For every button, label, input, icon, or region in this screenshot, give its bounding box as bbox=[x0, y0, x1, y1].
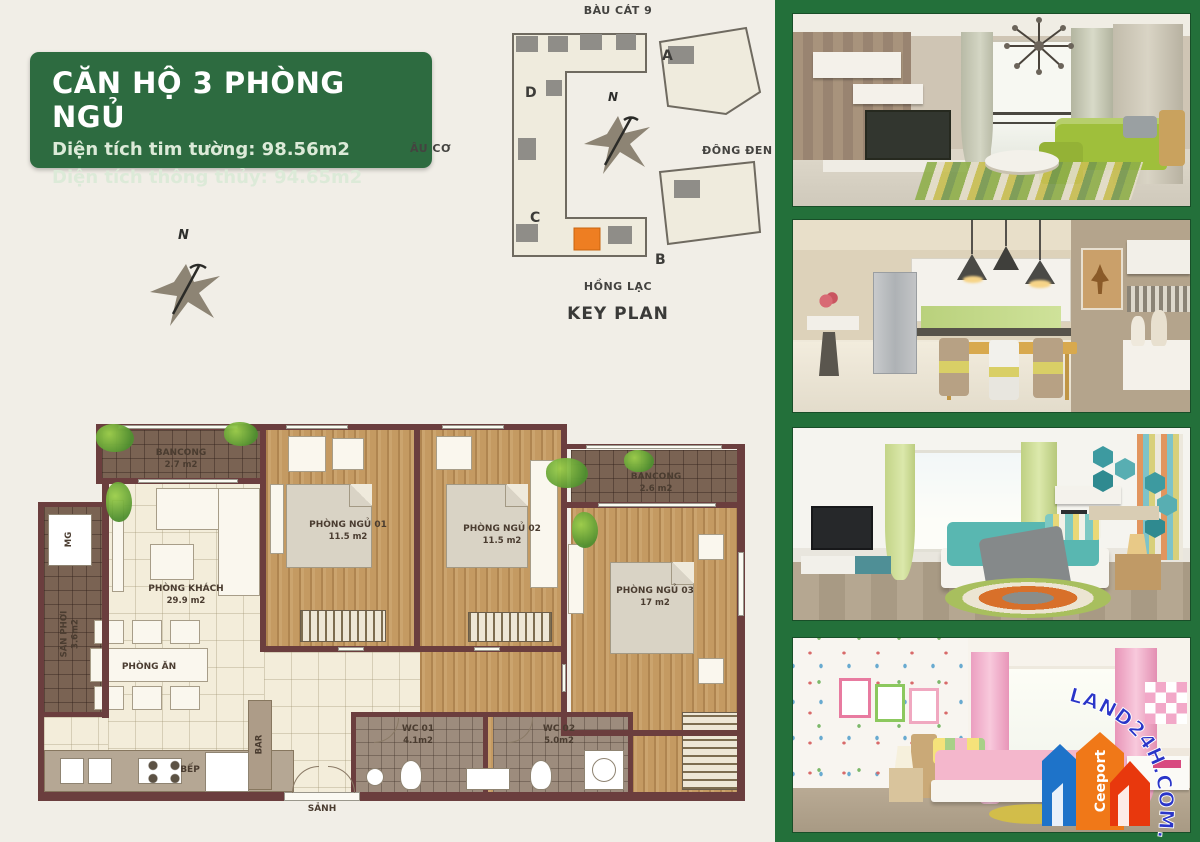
washer-label: MG bbox=[48, 514, 92, 566]
photo-bedroom bbox=[793, 428, 1190, 620]
room-label-balcony1: BANCONG 2.7 m2 bbox=[126, 448, 236, 471]
sideboard bbox=[1123, 340, 1190, 390]
sink-symbol bbox=[60, 758, 84, 784]
window bbox=[586, 445, 722, 449]
compass-north-label: N bbox=[178, 228, 189, 243]
flower-vase bbox=[811, 286, 841, 316]
wall bbox=[38, 502, 108, 507]
room-name: PHÒNG NGỦ 01 bbox=[292, 520, 404, 532]
entry-opening bbox=[284, 792, 360, 801]
window bbox=[738, 552, 744, 616]
wardrobe-symbol bbox=[468, 612, 552, 642]
pendant-lamp bbox=[993, 246, 1019, 270]
street-label-top: BÀU CÁT 9 bbox=[468, 4, 768, 17]
lamp-glow bbox=[1029, 280, 1051, 288]
countertop bbox=[911, 328, 1071, 336]
table-leg bbox=[1065, 354, 1069, 400]
hall-label: SẢNH bbox=[272, 804, 372, 816]
page: CĂN HỘ 3 PHÒNG NGỦ Diện tích tim tường: … bbox=[0, 0, 1200, 842]
coffee-table-symbol bbox=[150, 544, 194, 580]
green-backsplash bbox=[921, 306, 1061, 328]
room-name: BANCONG bbox=[126, 448, 236, 460]
dining-chair bbox=[939, 338, 969, 396]
bedside-lamp bbox=[895, 746, 913, 768]
wall-frame bbox=[909, 688, 939, 724]
pendant-stem bbox=[1005, 220, 1007, 246]
wc-sink-symbol bbox=[366, 768, 384, 786]
room-label-wc2: WC 02 5.0m2 bbox=[498, 724, 620, 747]
room-area: 2.7 m2 bbox=[126, 460, 236, 471]
room-area: 2.6 m2 bbox=[600, 484, 712, 495]
balcony-railing bbox=[993, 112, 1071, 115]
wall-frame bbox=[839, 678, 871, 718]
room-label-bedroom3: PHÒNG NGỦ 03 17 m2 bbox=[596, 586, 714, 609]
compass: N bbox=[138, 230, 234, 334]
page-title: CĂN HỘ 3 PHÒNG NGỦ bbox=[52, 66, 410, 134]
room-name: WC 01 bbox=[360, 724, 476, 736]
toilet-symbol bbox=[400, 760, 422, 790]
chair-symbol bbox=[132, 620, 162, 644]
headboard-shelf bbox=[1089, 506, 1159, 520]
block-label-a: A bbox=[662, 48, 673, 64]
photo-kitchen-dining bbox=[793, 220, 1190, 412]
shelf-symbol bbox=[270, 484, 284, 554]
nightstand bbox=[1115, 554, 1161, 590]
fridge bbox=[873, 272, 917, 374]
watermark-logo-text: Ceeport bbox=[1093, 749, 1109, 812]
wall-frame bbox=[875, 684, 905, 722]
window bbox=[118, 425, 238, 429]
sliding-door bbox=[598, 503, 716, 507]
room-label-wc1: WC 01 4.1m2 bbox=[360, 724, 476, 747]
street-label-bottom: HỒNG LẠC bbox=[468, 280, 768, 293]
wall bbox=[488, 712, 633, 717]
room-area: 11.5 m2 bbox=[446, 536, 558, 547]
highlighted-unit bbox=[574, 228, 600, 250]
wall-shelf bbox=[813, 52, 901, 78]
title-box: CĂN HỘ 3 PHÒNG NGỦ Diện tích tim tường: … bbox=[30, 52, 432, 168]
tv-screen bbox=[811, 506, 873, 550]
room-label-living: PHÒNG KHÁCH 29.9 m2 bbox=[120, 584, 252, 607]
room-name: SÂN PHƠI bbox=[59, 611, 69, 658]
room-name: BAR bbox=[254, 735, 265, 755]
wardrobe-symbol bbox=[682, 712, 738, 790]
tv-screen bbox=[865, 110, 951, 160]
room-name: PHÒNG NGỦ 02 bbox=[446, 524, 558, 536]
bath-basin-symbol bbox=[592, 758, 616, 782]
chair-symbol bbox=[94, 686, 124, 710]
plant-icon bbox=[106, 482, 132, 522]
block-label-c: C bbox=[530, 210, 540, 226]
curtain bbox=[961, 32, 993, 176]
dining-chair bbox=[1033, 338, 1063, 398]
street-label-left: ÂU CƠ bbox=[410, 142, 451, 155]
sink-symbol bbox=[88, 758, 112, 784]
room-name: BẾP bbox=[150, 765, 230, 777]
wall-shelf bbox=[853, 84, 923, 104]
room-area: 5.0m2 bbox=[498, 736, 620, 747]
key-plan-caption: KEY PLAN bbox=[468, 304, 768, 324]
wall-shelf bbox=[1055, 486, 1121, 504]
room-area: 29.9 m2 bbox=[120, 596, 252, 607]
media-unit bbox=[801, 556, 891, 574]
lamp-glow bbox=[963, 276, 983, 283]
dining-chair bbox=[989, 340, 1019, 400]
room-area: 17 m2 bbox=[596, 598, 714, 609]
wall-cabinet bbox=[1127, 240, 1190, 274]
door-opening bbox=[338, 647, 364, 651]
vase bbox=[1151, 310, 1167, 346]
cabinet-symbol bbox=[288, 436, 326, 472]
wall bbox=[260, 646, 567, 652]
vase bbox=[1131, 316, 1145, 346]
bar-label: BAR bbox=[248, 700, 272, 790]
cabinet-symbol bbox=[332, 438, 364, 470]
area-line-1: Diện tích tim tường: 98.56m2 bbox=[52, 138, 410, 162]
room-label-laundry: SÂN PHƠI 3.6m2 bbox=[42, 584, 98, 684]
chair-symbol bbox=[170, 686, 200, 710]
room-area: 11.5 m2 bbox=[292, 532, 404, 543]
door-opening bbox=[562, 664, 566, 692]
side-cabinet bbox=[1159, 110, 1185, 166]
area-line-2: Diện tích thông thủy: 94.65m2 bbox=[52, 166, 410, 190]
sputnik-chandelier bbox=[1001, 16, 1077, 78]
compass-star bbox=[138, 230, 234, 334]
block-label-d: D bbox=[525, 85, 537, 101]
sofa-symbol bbox=[218, 488, 260, 596]
nightstand-symbol bbox=[698, 658, 724, 684]
room-name: SẢNH bbox=[272, 804, 372, 816]
room-label-dining: PHÒNG ĂN bbox=[86, 662, 212, 674]
door-opening bbox=[474, 647, 500, 651]
room-area: 3.6m2 bbox=[70, 619, 80, 649]
nightstand bbox=[889, 768, 923, 802]
room-name: PHÒNG NGỦ 03 bbox=[596, 586, 714, 598]
room-label-bedroom2: PHÒNG NGỦ 02 11.5 m2 bbox=[446, 524, 558, 547]
wall bbox=[628, 712, 633, 797]
key-plan: BÀU CÁT 9 ÂU CƠ ĐÔNG ĐEN HỒNG LẠC KEY PL… bbox=[468, 4, 768, 334]
room-label-bedroom1: PHÒNG NGỦ 01 11.5 m2 bbox=[292, 520, 404, 543]
key-plan-north-label: N bbox=[608, 90, 618, 104]
room-name: WC 02 bbox=[498, 724, 620, 736]
window bbox=[286, 425, 348, 429]
plant-icon bbox=[572, 512, 598, 548]
key-plan-map bbox=[468, 20, 768, 278]
wall bbox=[414, 424, 420, 652]
wardrobe-symbol bbox=[300, 610, 386, 642]
photo-living-room bbox=[793, 14, 1190, 206]
chair-symbol bbox=[94, 620, 124, 644]
wall bbox=[38, 712, 108, 717]
table-lamp bbox=[1127, 534, 1147, 554]
chair-symbol bbox=[132, 686, 162, 710]
shelf-symbol bbox=[568, 544, 584, 614]
room-name: PHÒNG KHÁCH bbox=[120, 584, 252, 596]
building-wing-a bbox=[660, 28, 760, 114]
cabinet-symbol bbox=[436, 436, 472, 470]
block-label-b: B bbox=[655, 252, 666, 268]
watermark: Ceeport LAND24H.COM.VN bbox=[1030, 633, 1200, 842]
breakfast-bar bbox=[807, 316, 859, 330]
window bbox=[442, 425, 504, 429]
room-label-balcony2: BANCONG 2.6 m2 bbox=[600, 472, 712, 495]
nightstand-symbol bbox=[698, 534, 724, 560]
pendant-stem bbox=[971, 220, 973, 254]
floor-plan: BANCONG 2.7 m2 PHÒNG NGỦ 01 11.5 m2 PHÒN… bbox=[38, 424, 750, 838]
wall bbox=[38, 792, 745, 801]
building-wing-b bbox=[660, 162, 760, 244]
room-name: MG bbox=[64, 532, 75, 547]
coffee-table bbox=[985, 150, 1059, 172]
plant-icon bbox=[224, 422, 258, 446]
room-name: PHÒNG ĂN bbox=[86, 662, 212, 674]
plant-icon bbox=[546, 458, 588, 488]
room-area: 4.1m2 bbox=[360, 736, 476, 747]
room-name: BANCONG bbox=[600, 472, 712, 484]
kitchen-label: BẾP bbox=[150, 765, 230, 777]
plant-icon bbox=[624, 450, 654, 472]
shaft-symbol bbox=[466, 768, 510, 790]
toilet-symbol bbox=[530, 760, 552, 790]
chair-symbol bbox=[170, 620, 200, 644]
wall bbox=[260, 424, 266, 652]
pendant-stem bbox=[1039, 220, 1041, 260]
sliding-door bbox=[138, 479, 238, 483]
round-rug bbox=[945, 578, 1111, 618]
wall bbox=[737, 444, 745, 800]
sofa-cushion bbox=[1123, 116, 1157, 138]
wall bbox=[561, 502, 567, 736]
key-plan-compass bbox=[584, 116, 650, 174]
wall bbox=[351, 712, 488, 717]
bookshelf bbox=[1127, 286, 1190, 312]
